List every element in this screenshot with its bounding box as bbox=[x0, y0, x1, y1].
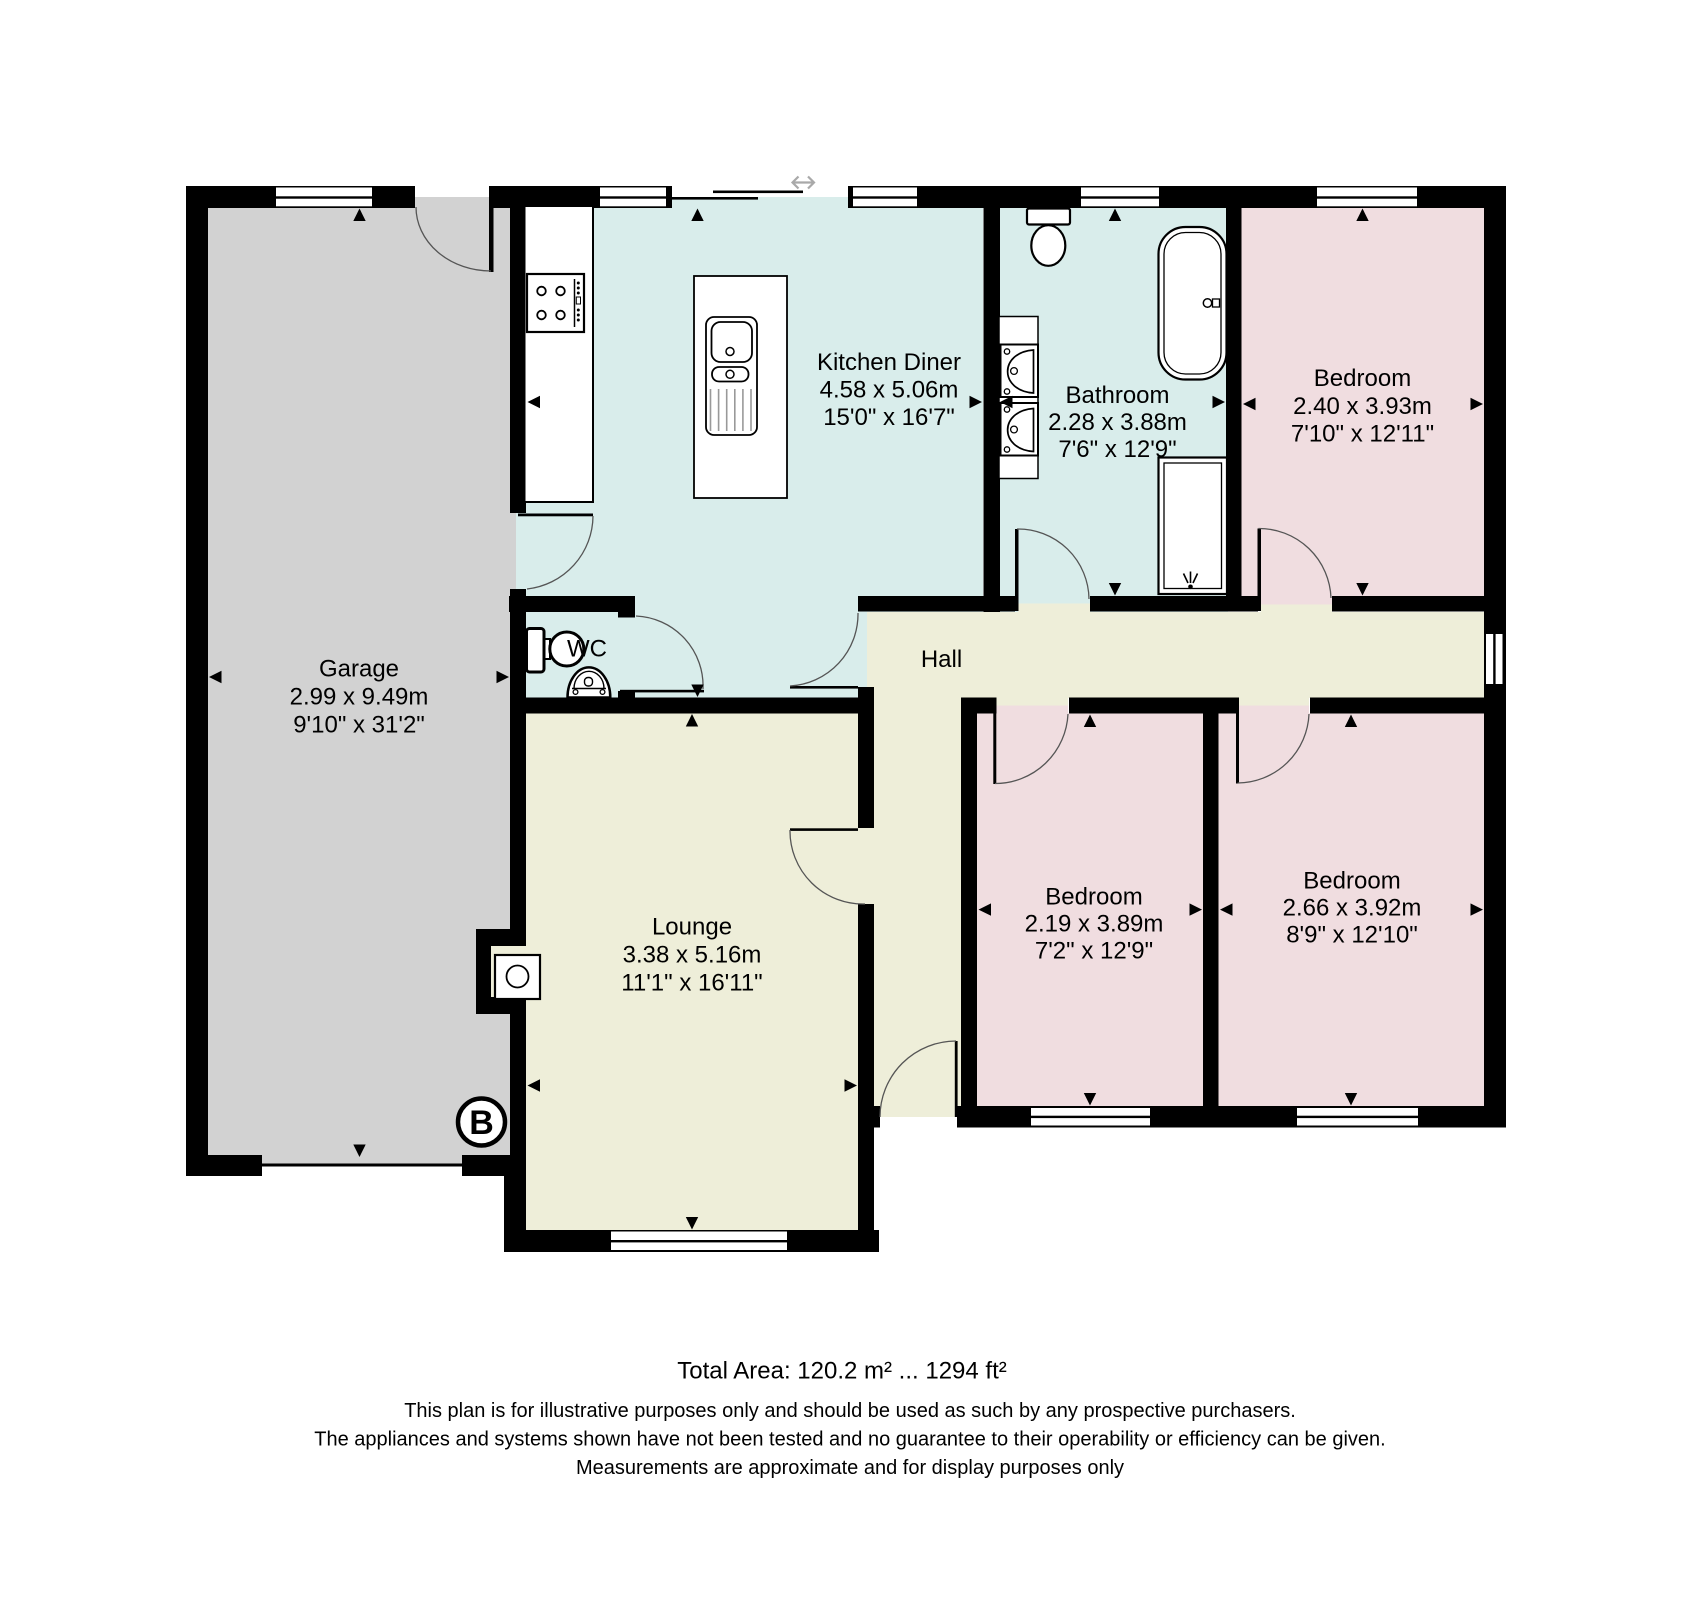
svg-text:Hall: Hall bbox=[921, 646, 962, 673]
svg-text:4.58 x 5.06m: 4.58 x 5.06m bbox=[820, 377, 959, 404]
svg-text:7'2" x 12'9": 7'2" x 12'9" bbox=[1035, 938, 1153, 965]
svg-text:Bedroom: Bedroom bbox=[1303, 867, 1400, 894]
svg-text:Measurements are approximate a: Measurements are approximate and for dis… bbox=[576, 1457, 1124, 1479]
svg-text:Kitchen Diner: Kitchen Diner bbox=[817, 349, 961, 376]
svg-text:The appliances and systems sho: The appliances and systems shown have no… bbox=[314, 1429, 1385, 1451]
svg-text:2.40 x 3.93m: 2.40 x 3.93m bbox=[1293, 393, 1432, 420]
svg-text:Total Area: 120.2 m² ... 1294: Total Area: 120.2 m² ... 1294 ft² bbox=[677, 1358, 1007, 1385]
svg-text:7'10" x 12'11": 7'10" x 12'11" bbox=[1291, 421, 1434, 448]
svg-text:7'6" x 12'9": 7'6" x 12'9" bbox=[1058, 436, 1176, 463]
svg-text:Bedroom: Bedroom bbox=[1314, 365, 1411, 392]
svg-text:2.99 x 9.49m: 2.99 x 9.49m bbox=[290, 684, 429, 711]
svg-text:15'0" x 16'7": 15'0" x 16'7" bbox=[823, 404, 955, 431]
svg-text:Lounge: Lounge bbox=[652, 914, 732, 941]
svg-text:8'9" x 12'10": 8'9" x 12'10" bbox=[1286, 922, 1418, 949]
svg-text:2.19 x 3.89m: 2.19 x 3.89m bbox=[1025, 910, 1164, 937]
svg-text:2.28 x 3.88m: 2.28 x 3.88m bbox=[1048, 409, 1187, 436]
svg-text:Garage: Garage bbox=[319, 656, 399, 683]
svg-text:2.66 x 3.92m: 2.66 x 3.92m bbox=[1283, 895, 1422, 922]
svg-text:B: B bbox=[469, 1104, 494, 1142]
svg-text:WC: WC bbox=[567, 636, 607, 663]
svg-text:11'1" x 16'11": 11'1" x 16'11" bbox=[621, 970, 762, 997]
svg-text:Bathroom: Bathroom bbox=[1065, 382, 1169, 409]
svg-text:9'10" x 31'2": 9'10" x 31'2" bbox=[293, 712, 425, 739]
svg-text:3.38 x 5.16m: 3.38 x 5.16m bbox=[623, 942, 762, 969]
svg-text:This plan is for illustrative: This plan is for illustrative purposes o… bbox=[404, 1400, 1296, 1422]
svg-text:Bedroom: Bedroom bbox=[1045, 883, 1142, 910]
